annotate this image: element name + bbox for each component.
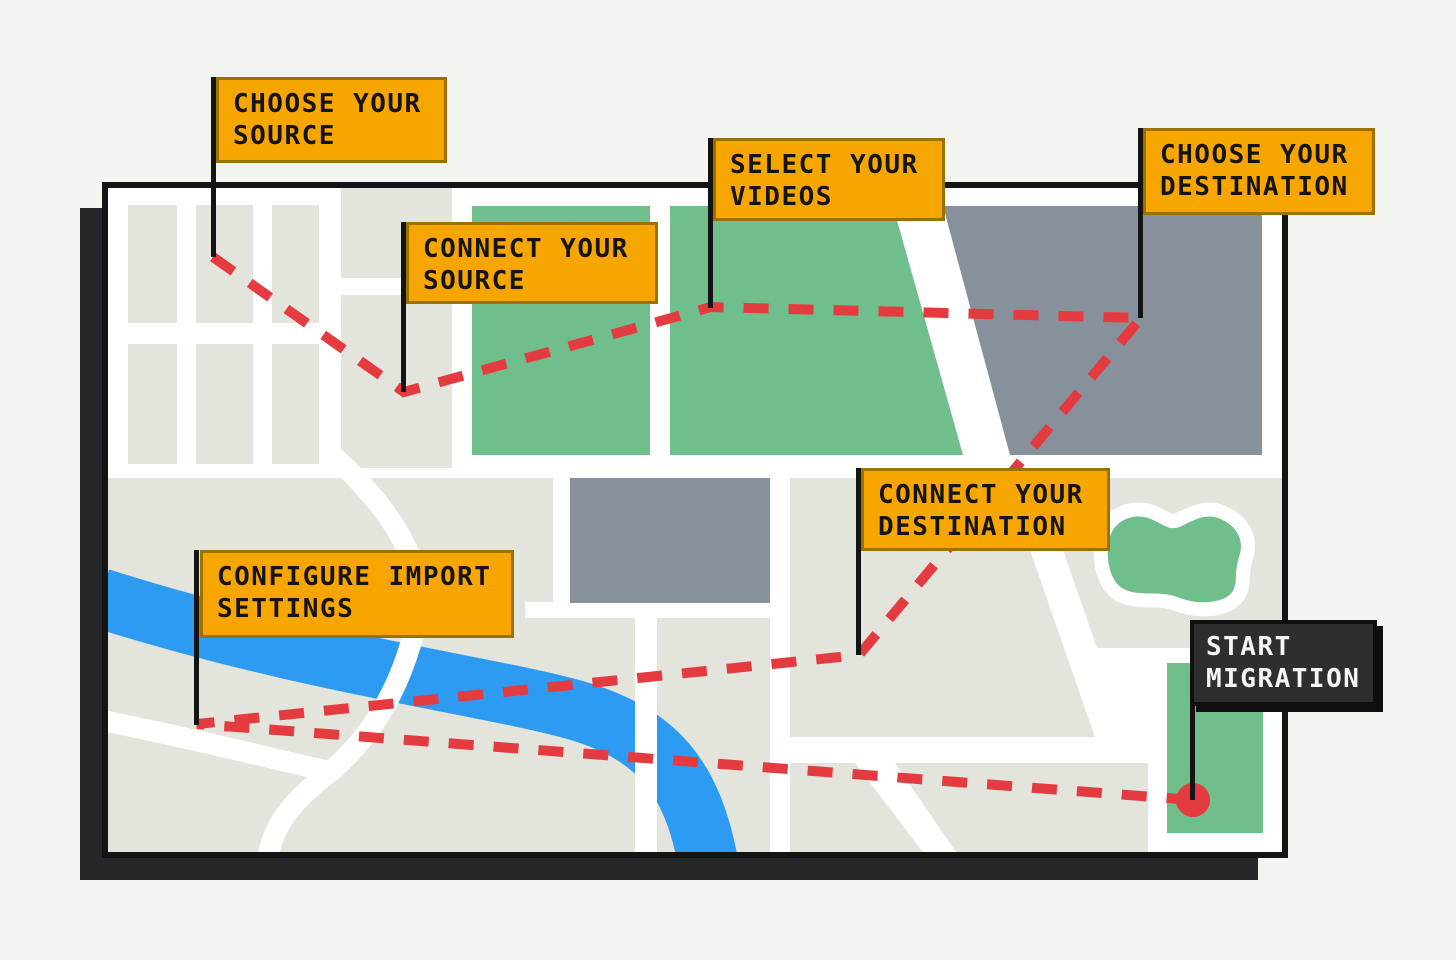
step-label-line: SELECT YOUR: [730, 149, 928, 181]
step-label-connect-source: CONNECT YOUR SOURCE: [406, 222, 658, 304]
step-label-line: SOURCE: [423, 265, 641, 297]
step-label-line: SETTINGS: [217, 593, 497, 625]
slate-block-center: [570, 478, 770, 603]
pond: [1101, 509, 1248, 609]
step-label-connect-destination: CONNECT YOUR DESTINATION: [861, 468, 1110, 551]
step-label-line: CHOOSE YOUR: [1160, 139, 1358, 171]
step-label-choose-source: CHOOSE YOUR SOURCE: [216, 77, 447, 163]
migration-roadmap-illustration: CHOOSE YOUR SOURCE CONNECT YOUR SOURCE S…: [0, 0, 1456, 960]
step-label-line: MIGRATION: [1206, 663, 1361, 695]
step-label-line: CONNECT YOUR: [878, 479, 1093, 511]
step-label-configure-import-settings: CONFIGURE IMPORT SETTINGS: [200, 550, 514, 638]
step-label-line: CONFIGURE IMPORT: [217, 561, 497, 593]
step-label-line: CONNECT YOUR: [423, 233, 641, 265]
step-label-line: VIDEOS: [730, 181, 928, 213]
step-label-line: CHOOSE YOUR: [233, 88, 430, 120]
step-label-line: DESTINATION: [1160, 171, 1358, 203]
step-label-choose-destination: CHOOSE YOUR DESTINATION: [1143, 128, 1375, 215]
step-label-select-videos: SELECT YOUR VIDEOS: [713, 138, 945, 221]
step-label-line: SOURCE: [233, 120, 430, 152]
road-horizontal: [525, 602, 790, 618]
step-label-line: DESTINATION: [878, 511, 1093, 543]
step-label-line: START: [1206, 631, 1361, 663]
step-label-start-migration: START MIGRATION: [1190, 620, 1377, 706]
